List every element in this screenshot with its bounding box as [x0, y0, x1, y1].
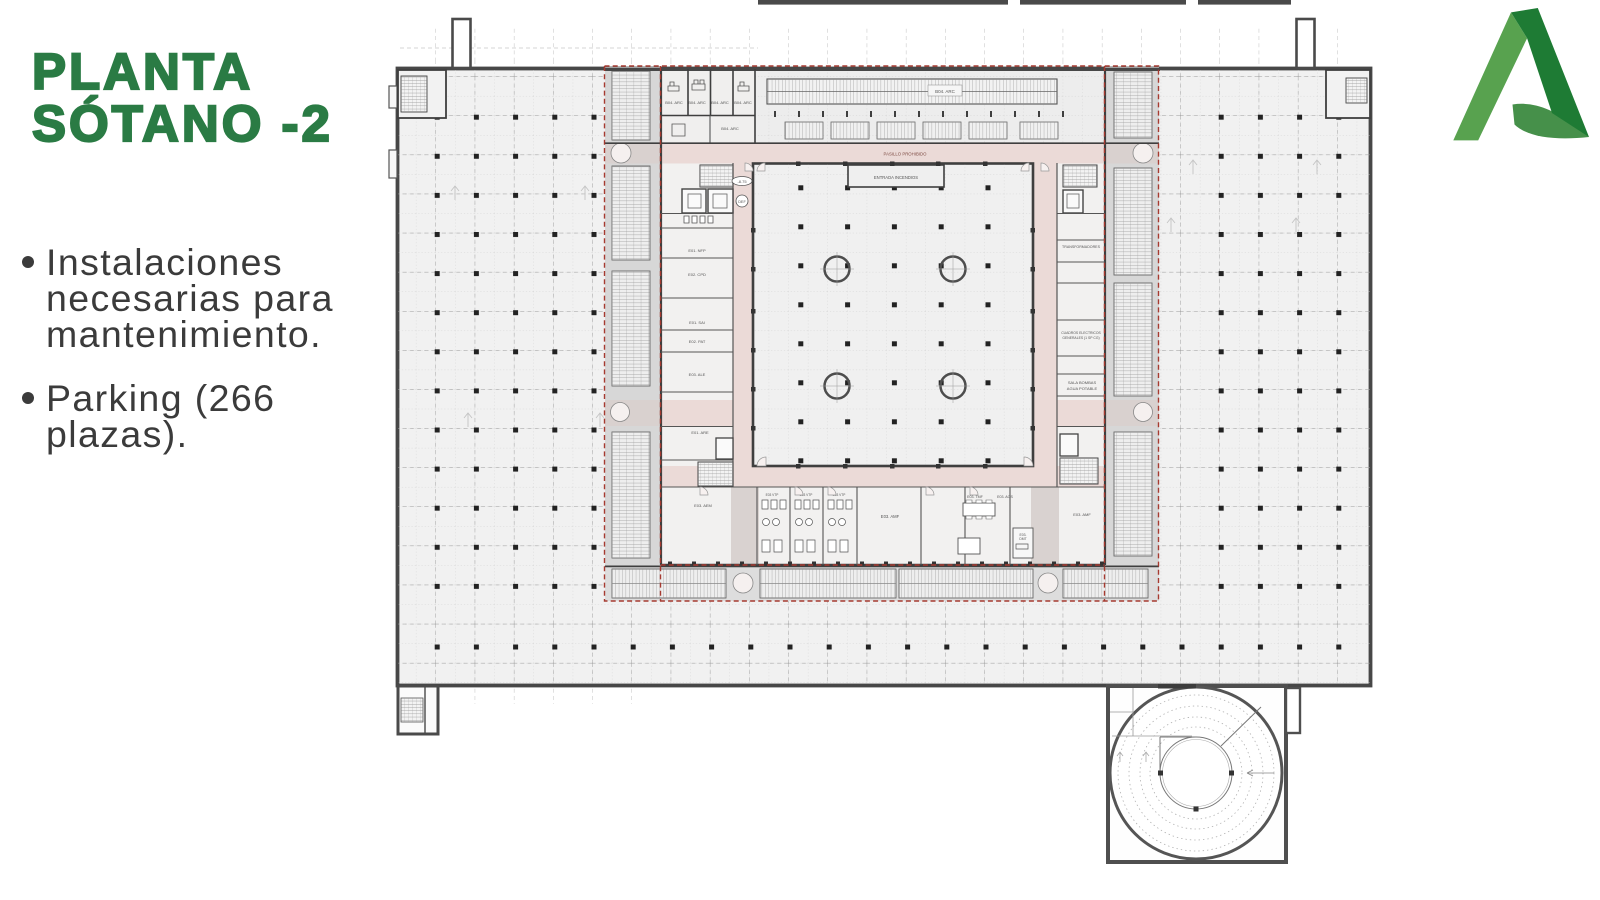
svg-text:E03. TMF: E03. TMF: [967, 495, 984, 499]
svg-text:E03. ALE: E03. ALE: [689, 372, 706, 377]
svg-text:B04. ARC: B04. ARC: [734, 100, 752, 105]
svg-text:DMT: DMT: [1019, 537, 1026, 541]
svg-text:E03. AOS: E03. AOS: [997, 495, 1013, 499]
svg-text:ENTRADA INCENDIOS: ENTRADA INCENDIOS: [874, 175, 918, 180]
svg-text:SALA BOMBAS: SALA BOMBAS: [1068, 380, 1097, 385]
svg-text:E03. AMF: E03. AMF: [1073, 512, 1091, 517]
svg-text:E02. CPD: E02. CPD: [688, 272, 706, 277]
svg-text:GENERALES (1 SP CG): GENERALES (1 SP CG): [1062, 336, 1099, 340]
svg-text:PASILLO PROHIBIDO: PASILLO PROHIBIDO: [884, 151, 928, 156]
svg-text:B04. ARC: B04. ARC: [665, 100, 683, 105]
svg-text:E03 VTP: E03 VTP: [766, 493, 779, 497]
svg-text:E03. AEM: E03. AEM: [694, 503, 712, 508]
svg-text:B04. ARC: B04. ARC: [935, 89, 956, 94]
svg-text:TRANSFORMADORES: TRANSFORMADORES: [1062, 245, 1101, 249]
svg-text:CUADROS ELECTRICOS: CUADROS ELECTRICOS: [1061, 331, 1101, 335]
svg-text:E01. NFP: E01. NFP: [688, 248, 706, 253]
svg-text:E01. SAI: E01. SAI: [689, 320, 705, 325]
svg-text:B04. ARC: B04. ARC: [711, 100, 729, 105]
svg-text:E01. ARE: E01. ARE: [691, 430, 709, 435]
svg-text:AGUA POTABLE: AGUA POTABLE: [1067, 386, 1098, 391]
svg-text:E03. AMF: E03. AMF: [881, 514, 900, 519]
svg-text:DEF: DEF: [738, 200, 746, 204]
svg-text:B04. ARC: B04. ARC: [721, 126, 739, 131]
svg-text:E02. PAT: E02. PAT: [689, 339, 706, 344]
svg-text:B04. ARC: B04. ARC: [688, 100, 706, 105]
svg-text:-8.75: -8.75: [737, 179, 747, 184]
